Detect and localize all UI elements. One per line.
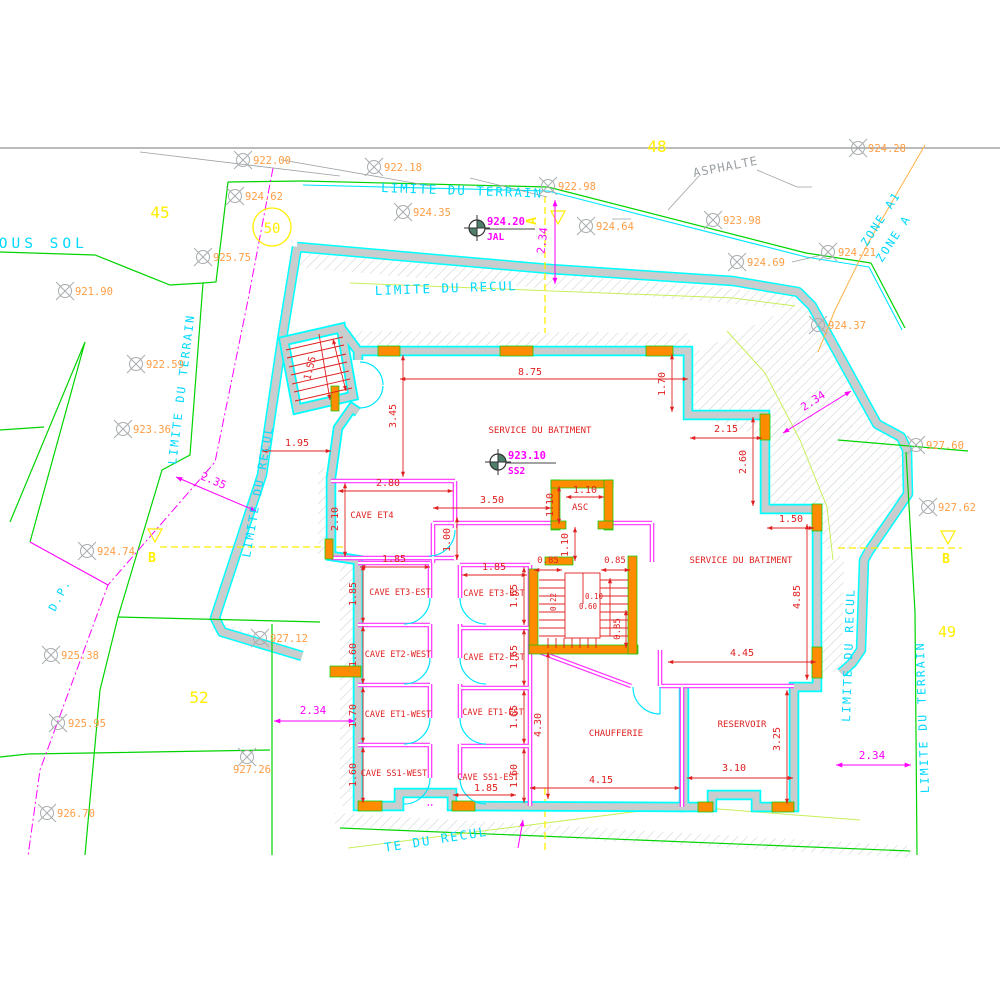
- room-label: CAVE ET4: [350, 511, 393, 521]
- elevation-value: 924.28: [868, 143, 906, 155]
- elevation-point: 924.28: [849, 139, 906, 157]
- section-letter: B: [148, 551, 156, 566]
- elevation-point: 927.60: [907, 436, 964, 454]
- dimension-label: 1.95: [285, 438, 309, 449]
- parcel-number: 48: [647, 137, 666, 156]
- elevation-value: 924.62: [245, 191, 283, 203]
- dimension-label: 1.85: [482, 562, 506, 573]
- survey-control-point: 923.10SS2: [485, 449, 556, 477]
- section-letter: A: [525, 217, 540, 225]
- elevation-value: 921.90: [75, 286, 113, 298]
- elevation-point: 927.12: [251, 629, 308, 647]
- boundary-label: LIMITE DU RECUL: [239, 424, 276, 558]
- dimension-label: 8.75: [518, 367, 542, 378]
- dimension-label: 2.60: [738, 450, 749, 474]
- parcel-number: 50: [264, 221, 281, 237]
- elevation-point: 924.37: [809, 316, 866, 334]
- room-label: CAVE ET1-WEST: [365, 710, 432, 720]
- dimension-label: 1.50: [779, 514, 803, 525]
- elevation-point: 926.70: [38, 804, 95, 822]
- dimension-label: 1.85: [348, 582, 359, 606]
- dimension-label: 1.85: [474, 783, 498, 794]
- dimension-label: 3.45: [388, 404, 399, 428]
- elevation-value: 924.21: [838, 247, 876, 259]
- elevation-value: 927.26: [233, 764, 271, 776]
- room-label: CAVE ET2-WEST: [365, 650, 432, 660]
- elevation-point: 922.59: [127, 355, 184, 373]
- parcel-number: 45: [150, 203, 169, 222]
- elevation-point: 927.62: [919, 498, 976, 516]
- dimension-label: 1.60: [348, 763, 359, 787]
- dimension-label: 1.70: [657, 372, 668, 396]
- site-dimension-label: 2.34: [534, 226, 550, 254]
- elevation-value: 924.74: [97, 546, 135, 558]
- survey-elevation: 923.10: [508, 450, 546, 462]
- boundary-label: LIMITE DU TERRAIN: [913, 641, 932, 793]
- dimension-label: 1.55: [302, 355, 319, 381]
- room-label: SERVICE DU BATIMENT: [690, 556, 794, 566]
- dimension-label: 0.22: [549, 593, 558, 611]
- elevation-point: 922.98: [539, 177, 596, 195]
- floor-plan-drawing: LIMITE DU TERRAINLIMITE DU RECULSOUS SOL…: [0, 0, 1000, 1000]
- elevation-point: 922.18: [365, 158, 422, 176]
- survey-name: SS2: [508, 466, 525, 477]
- elevation-value: 924.35: [413, 207, 451, 219]
- dimension-label: 1.10: [573, 485, 597, 496]
- dimension-label: 0.60: [579, 602, 598, 611]
- elevation-point: 924.74: [78, 542, 135, 560]
- dimension-label: 4.30: [533, 713, 544, 737]
- dimension-label: 0.10: [585, 592, 604, 601]
- site-dimension-label: 2.34: [300, 704, 327, 717]
- elevation-value: 922.59: [146, 359, 184, 371]
- elevation-value: 924.37: [828, 320, 866, 332]
- boundary-label: D.P.: [46, 577, 74, 614]
- dimension-label: 1.10: [545, 493, 556, 517]
- parcel-number: 52: [189, 688, 208, 707]
- elevation-value: 924.69: [747, 257, 785, 269]
- dimension-label: 1.60: [509, 764, 520, 788]
- room-label: ASC: [572, 503, 588, 513]
- boundary-label: LIMITE DU TERRAIN: [381, 180, 543, 201]
- site-plan-canvas: LIMITE DU TERRAINLIMITE DU RECULSOUS SOL…: [0, 0, 1000, 1000]
- room-label: CHAUFFERIE: [589, 729, 643, 739]
- dimension-label: 3.10: [722, 763, 746, 774]
- dimension-label: 2.80: [376, 478, 400, 489]
- dimension-label: 0.85: [613, 618, 623, 640]
- elevation-value: 926.70: [57, 808, 95, 820]
- elevation-point: 921.90: [56, 282, 113, 300]
- elevation-value: 927.12: [270, 633, 308, 645]
- boundary-label: LIMITE DU RECUL: [375, 278, 518, 298]
- elevation-point: 925.38: [42, 646, 99, 664]
- dimension-label: 2.15: [714, 424, 738, 435]
- elevation-point: 924.35: [394, 203, 451, 221]
- elevation-value: 923.98: [723, 215, 761, 227]
- elevation-value: 922.98: [558, 181, 596, 193]
- section-letter: B: [942, 552, 950, 567]
- elevation-value: 922.18: [384, 162, 422, 174]
- section-a-triangle: [551, 211, 565, 224]
- parcel-number: 49: [938, 623, 956, 641]
- dimension-label: 1.10: [560, 533, 571, 557]
- room-label: CAVE ET3-EST: [369, 588, 430, 598]
- elevation-value: 925.95: [68, 718, 106, 730]
- elevation-point: 924.69: [728, 253, 785, 271]
- elevation-value: 925.38: [61, 650, 99, 662]
- elevation-point: 924.62: [226, 187, 283, 205]
- elevation-point: 923.36: [114, 420, 171, 438]
- dimension-label: 2.10: [330, 507, 341, 531]
- elevation-value: 927.60: [926, 440, 964, 452]
- elevation-point: 925.75: [194, 248, 251, 266]
- elevation-value: 925.75: [213, 252, 251, 264]
- room-label: CAVE SS1-WEST: [361, 769, 428, 779]
- elevation-value: 923.36: [133, 424, 171, 436]
- dimension-label: 4.85: [792, 585, 803, 609]
- dimension-label: 1.00: [442, 528, 453, 552]
- elevation-value: 922.00: [253, 155, 291, 167]
- elevation-value: 924.64: [596, 221, 634, 233]
- dimension-label: 1.85: [382, 554, 406, 565]
- elevation-value: 927.62: [938, 502, 976, 514]
- elevation-point: 927.26: [233, 748, 271, 776]
- boundary-label: ASPHALTE: [692, 154, 759, 180]
- interior-partition-walls: [331, 481, 794, 807]
- dimension-label: 1.65: [509, 584, 520, 608]
- boundary-label: LIMITE DU TERRAIN: [165, 313, 197, 465]
- site-dimension-label: 2.34: [859, 749, 886, 762]
- survey-control-point: 924.20JAL: [464, 215, 535, 243]
- survey-elevation: 924.20: [487, 216, 525, 228]
- dimension-label: 0.85: [604, 556, 626, 566]
- room-label: RESERVOIR: [718, 720, 767, 730]
- elevation-point: 924.64: [577, 217, 634, 235]
- elevation-point: 922.00: [234, 151, 291, 169]
- section-b-right-triangle: [941, 531, 955, 544]
- dimension-label: 1.65: [509, 705, 520, 729]
- boundary-label: SOUS SOL: [0, 236, 88, 252]
- dimension-label: 4.15: [589, 775, 613, 786]
- dimension-label: 0.85: [537, 556, 559, 566]
- elevation-point: 923.98: [704, 211, 761, 229]
- dimension-label: 3.25: [772, 727, 783, 751]
- room-label: SERVICE DU BATIMENT: [489, 426, 593, 436]
- survey-name: JAL: [487, 232, 504, 243]
- dimension-label: 1.60: [348, 643, 359, 667]
- dimension-label: 1.70: [348, 704, 359, 728]
- dimension-label: 4.45: [730, 648, 754, 659]
- dimension-label: 1.65: [509, 645, 520, 669]
- dimension-label: 3.50: [480, 495, 504, 506]
